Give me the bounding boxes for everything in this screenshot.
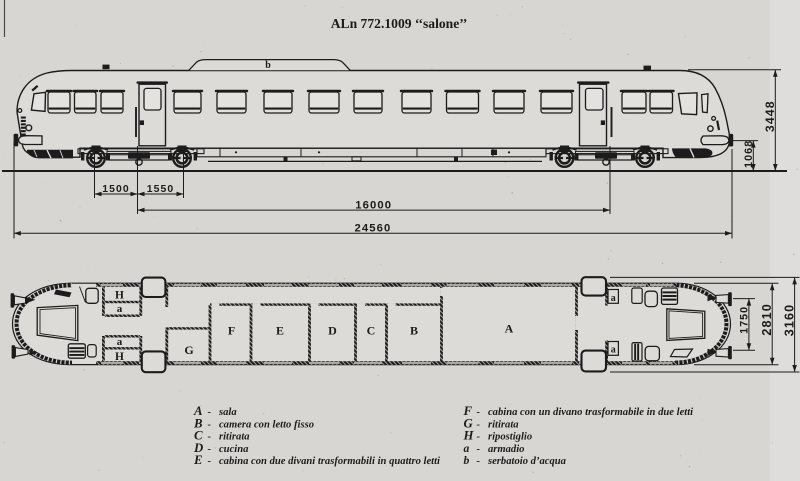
svg-text:- serbatoio d’acqua: - serbatoio d’acqua bbox=[477, 456, 567, 467]
svg-text:- ritirata: - ritirata bbox=[208, 432, 251, 443]
svg-text:E: E bbox=[193, 453, 203, 467]
svg-text:- cabina con due divani tras: - cabina con due divani trasformabili in… bbox=[208, 456, 441, 467]
svg-text:a: a bbox=[611, 345, 616, 356]
svg-text:D: D bbox=[328, 323, 337, 337]
svg-text:2810: 2810 bbox=[760, 303, 774, 335]
svg-text:- armadio: - armadio bbox=[477, 444, 525, 455]
svg-text:C: C bbox=[367, 323, 376, 337]
svg-text:H: H bbox=[115, 290, 124, 302]
svg-text:a: a bbox=[117, 303, 123, 315]
svg-text:24560: 24560 bbox=[354, 223, 391, 235]
svg-text:1750: 1750 bbox=[739, 306, 751, 334]
svg-text:3160: 3160 bbox=[782, 304, 796, 336]
svg-text:a: a bbox=[464, 442, 470, 455]
svg-text:G: G bbox=[184, 343, 193, 357]
svg-text:- cabina con un divano trasf: - cabina con un divano trasformabile in … bbox=[477, 407, 694, 418]
svg-text:F: F bbox=[228, 323, 235, 337]
svg-text:- sala: - sala bbox=[208, 407, 238, 418]
svg-text:b: b bbox=[464, 454, 470, 467]
svg-text:3448: 3448 bbox=[763, 100, 777, 132]
svg-text:B: B bbox=[410, 323, 418, 337]
svg-text:1500: 1500 bbox=[102, 184, 130, 195]
svg-text:- ritirata: - ritirata bbox=[477, 419, 520, 430]
svg-text:16000: 16000 bbox=[355, 199, 392, 211]
svg-text:A: A bbox=[505, 321, 514, 335]
svg-text:1068: 1068 bbox=[743, 140, 755, 168]
svg-text:a: a bbox=[611, 293, 616, 304]
svg-text:- camera con letto fisso: - camera con letto fisso bbox=[208, 419, 315, 430]
svg-text:- ripostiglio: - ripostiglio bbox=[477, 432, 533, 443]
svg-text:b: b bbox=[265, 60, 271, 71]
svg-text:H: H bbox=[115, 351, 124, 363]
svg-text:1550: 1550 bbox=[147, 184, 175, 195]
svg-text:- cucina: - cucina bbox=[208, 444, 250, 455]
svg-text:a: a bbox=[117, 336, 123, 348]
svg-text:E: E bbox=[276, 323, 284, 337]
svg-text:H: H bbox=[463, 429, 475, 443]
svg-text:ALn 772.1009 ‘‘salone’’: ALn 772.1009 ‘‘salone’’ bbox=[331, 16, 468, 31]
